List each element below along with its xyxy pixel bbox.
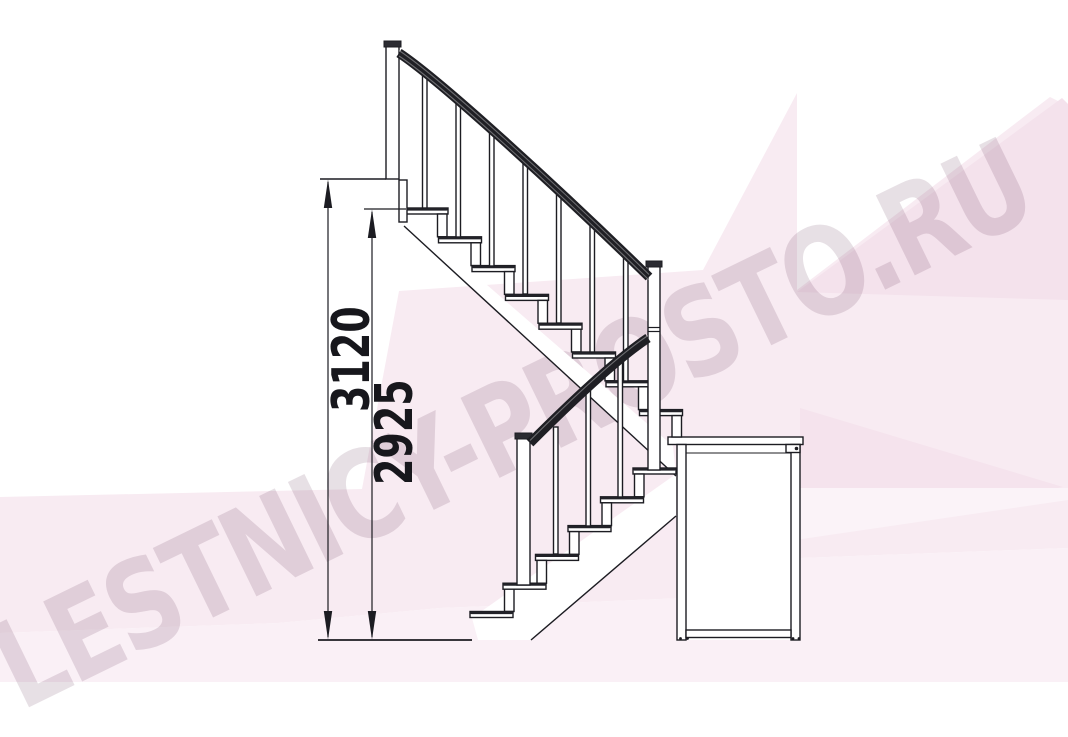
arrowhead-up xyxy=(368,210,376,239)
box-top-plate xyxy=(668,437,803,445)
tread-support xyxy=(471,243,481,266)
middle-newel-cap xyxy=(646,261,662,267)
bottom-newel-post xyxy=(517,438,530,585)
tread-support xyxy=(505,589,515,611)
staircase-elevation-drawing: 3120 2925 xyxy=(0,0,1068,682)
dimension-label-2925: 2925 xyxy=(364,379,424,485)
baluster xyxy=(624,254,629,381)
baluster xyxy=(490,130,495,266)
box-foot-pin xyxy=(679,637,682,640)
box-foot-pin xyxy=(686,637,689,640)
tread-support xyxy=(572,329,582,352)
box-left-leg xyxy=(677,445,686,641)
support-frame-box xyxy=(668,437,803,640)
dimension-line-2925: 2925 xyxy=(364,210,424,640)
upper-flight xyxy=(405,208,683,437)
baluster xyxy=(618,362,623,497)
box-bottom-rail xyxy=(686,630,791,638)
baluster xyxy=(590,222,595,352)
box-foot-pin xyxy=(798,637,801,640)
arrowhead-up xyxy=(324,180,332,209)
tread-support xyxy=(635,474,645,497)
baluster xyxy=(423,72,428,208)
tread-support xyxy=(570,532,580,555)
box-foot-pin xyxy=(792,637,795,640)
top-newel-cap xyxy=(384,41,401,47)
baluster xyxy=(523,158,528,294)
arrowhead-down xyxy=(368,611,376,640)
box-bracket-pin xyxy=(795,447,799,451)
tread-support xyxy=(602,503,612,526)
tread-support xyxy=(505,272,515,295)
floor-hanger-block xyxy=(399,180,407,222)
tread-support xyxy=(538,300,548,323)
arrowhead-down xyxy=(324,611,332,640)
top-newel-post xyxy=(386,46,399,179)
tread-support xyxy=(639,387,649,410)
tread-support xyxy=(438,214,448,237)
box-right-leg xyxy=(791,445,800,641)
baluster xyxy=(557,190,562,323)
baluster xyxy=(456,100,461,237)
tread-support xyxy=(672,416,682,437)
baluster xyxy=(554,427,559,554)
tread-support xyxy=(537,560,547,583)
staircase-drawing-page: { "watermark": { "text": "LESTNICY-PROST… xyxy=(0,0,1068,682)
middle-newel-post xyxy=(648,266,660,470)
baluster xyxy=(586,391,591,526)
